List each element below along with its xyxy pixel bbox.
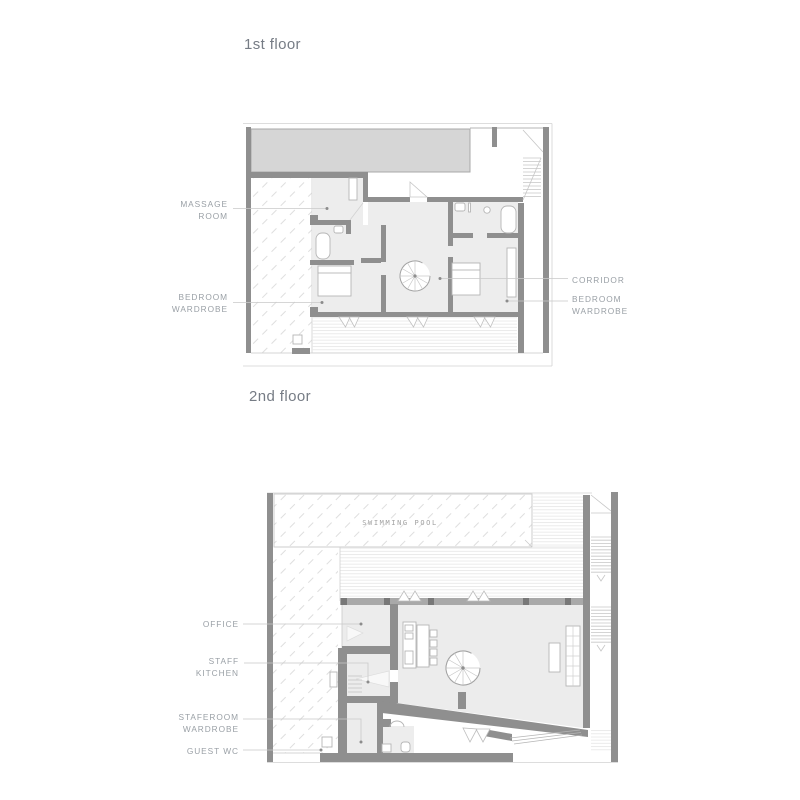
column-marker — [293, 335, 302, 344]
label-line: BEDROOM — [98, 291, 228, 303]
label-line: WARDROBE — [572, 305, 628, 317]
label-bedroom-wardrobe-left: BEDROOM WARDROBE — [98, 291, 228, 316]
floorplans-drawing: SWIMMING POOL — [0, 0, 800, 800]
window-icons — [463, 728, 490, 742]
toilet-icon — [334, 226, 343, 233]
floor2-staircase-icon — [591, 495, 611, 651]
label-staff-kitchen: STAFF KITCHEN — [108, 655, 239, 680]
faucet-icon — [469, 203, 471, 212]
kitchen-island — [417, 625, 429, 667]
label-office: OFFICE — [108, 618, 239, 630]
wardrobe-icon — [507, 248, 516, 297]
label-massage-room: MASSAGE ROOM — [98, 198, 228, 223]
label-line: BEDROOM — [572, 293, 628, 305]
bathtub-icon — [316, 233, 330, 259]
toilet-icon — [455, 203, 465, 211]
label-staferoom-wardrobe: STAFEROOM WARDROBE — [108, 711, 239, 736]
label-bedroom-wardrobe-right: BEDROOM WARDROBE — [572, 293, 628, 318]
label-line: ROOM — [98, 210, 228, 222]
cabinet-icon — [549, 643, 560, 672]
entrance-door-icon — [410, 182, 427, 197]
label-line: STAFEROOM — [108, 711, 239, 723]
sink-icon — [382, 744, 391, 752]
floor1-roof-slab — [251, 129, 470, 172]
label-line: KITCHEN — [108, 667, 239, 679]
swimming-pool-label: SWIMMING POOL — [362, 519, 438, 527]
floor1-plan — [233, 124, 568, 367]
bathtub-icon — [501, 206, 516, 233]
floor2-window-wall — [340, 598, 583, 605]
label-line: WARDROBE — [108, 723, 239, 735]
label-line: STAFF — [108, 655, 239, 667]
floor1-staircase-icon — [523, 130, 543, 200]
floor1-hatched-terrace — [251, 172, 312, 353]
spiral-staircase-icon — [446, 651, 480, 685]
label-line: OFFICE — [108, 618, 239, 630]
label-line: CORRIDOR — [572, 274, 625, 286]
label-corridor: CORRIDOR — [572, 274, 625, 286]
label-guest-wc: GUEST WC — [108, 745, 239, 757]
floorplan-canvas: 1st floor 2nd floor — [0, 0, 800, 800]
label-line: GUEST WC — [108, 745, 239, 757]
label-line: WARDROBE — [98, 303, 228, 315]
spiral-staircase-icon — [400, 261, 430, 291]
floor2-plan: SWIMMING POOL — [243, 492, 618, 763]
column-marker — [322, 737, 332, 747]
label-line: MASSAGE — [98, 198, 228, 210]
cabinet-icon — [349, 178, 357, 200]
sink-icon — [484, 207, 490, 213]
toilet-icon — [401, 742, 410, 752]
floor2-hatched-terrace — [273, 547, 338, 753]
